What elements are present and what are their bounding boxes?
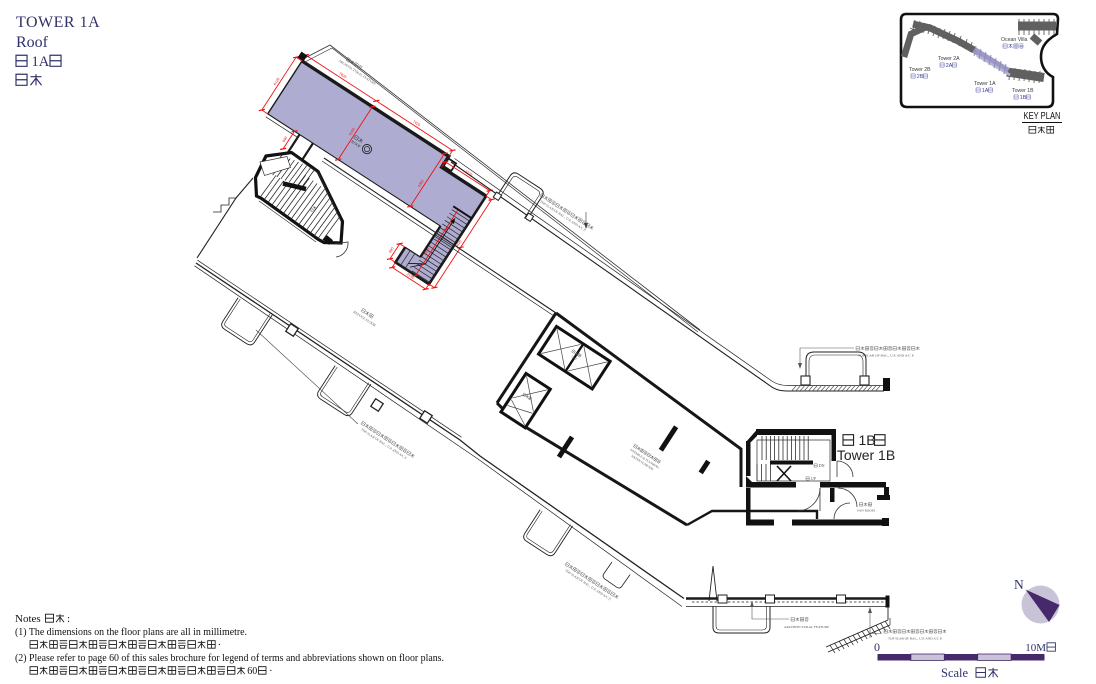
svg-text:Scale: Scale xyxy=(941,666,969,680)
svg-text:1A: 1A xyxy=(982,88,989,94)
svg-text:N: N xyxy=(1014,577,1024,592)
svg-text:(2) Please refer to page 60 of: (2) Please refer to page 60 of this sale… xyxy=(15,652,444,664)
svg-text:10M: 10M xyxy=(1025,642,1046,654)
svg-text:0: 0 xyxy=(874,640,880,654)
svg-text:UP: UP xyxy=(811,476,817,481)
svg-text:1B: 1B xyxy=(859,432,876,448)
svg-text:1A: 1A xyxy=(32,54,50,70)
svg-text:FAN ROOM: FAN ROOM xyxy=(857,509,875,513)
svg-text:Tower 2B: Tower 2B xyxy=(909,67,931,73)
svg-text::: : xyxy=(67,613,70,625)
svg-text:Tower 1A: Tower 1A xyxy=(974,81,996,87)
svg-text:Roof: Roof xyxy=(16,34,49,51)
svg-text:KEY PLAN: KEY PLAN xyxy=(1024,110,1061,122)
svg-text:Tower 1B: Tower 1B xyxy=(837,447,895,463)
svg-text:(1) The dimensions on the floo: (1) The dimensions on the floor plans ar… xyxy=(15,626,247,638)
svg-text:Tower 1B: Tower 1B xyxy=(1012,88,1034,94)
svg-text:Ocean Villa: Ocean Villa xyxy=(1001,37,1028,43)
svg-text:·: · xyxy=(218,639,222,651)
svg-text:Notes: Notes xyxy=(15,613,41,625)
svg-text:Tower 2A: Tower 2A xyxy=(938,56,960,62)
svg-text:1B: 1B xyxy=(1020,95,1027,101)
svg-text:·: · xyxy=(269,665,273,677)
svg-text:TOWER 1A: TOWER 1A xyxy=(16,14,100,31)
svg-text:2B: 2B xyxy=(917,74,924,80)
svg-text:2A: 2A xyxy=(946,63,953,69)
svg-text:DN: DN xyxy=(819,463,825,468)
svg-text:60: 60 xyxy=(247,666,257,677)
svg-text:ARCHITECTURAL FEATURE: ARCHITECTURAL FEATURE xyxy=(784,625,829,629)
